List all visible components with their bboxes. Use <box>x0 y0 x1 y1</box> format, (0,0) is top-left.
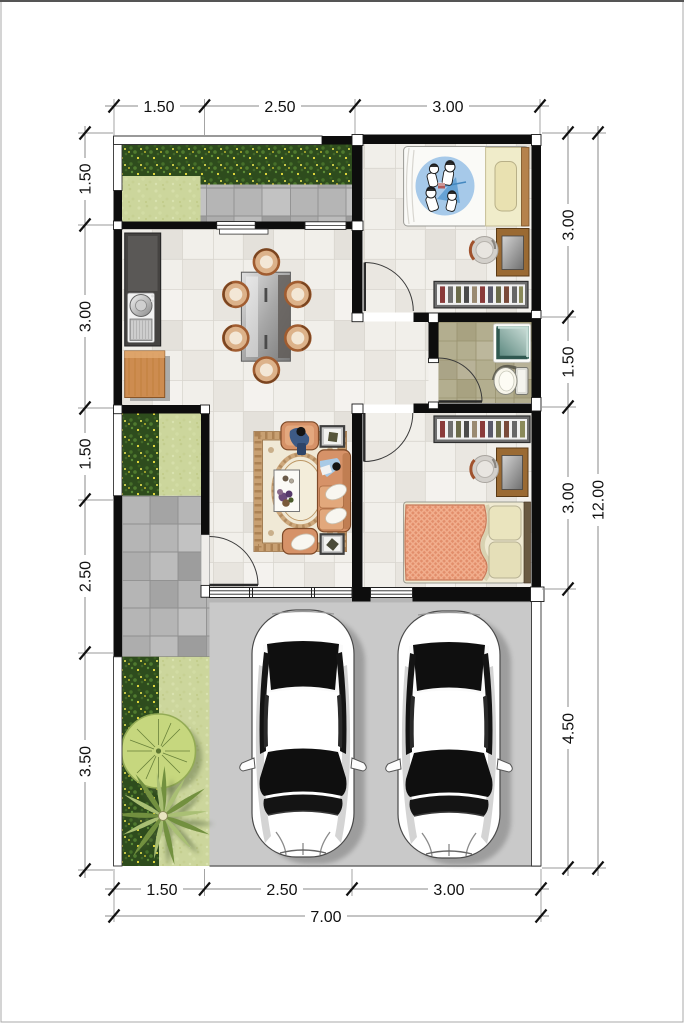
svg-text:1.50: 1.50 <box>561 346 578 377</box>
svg-text:3.50: 3.50 <box>78 746 95 777</box>
svg-text:3.00: 3.00 <box>433 882 464 899</box>
svg-text:3.00: 3.00 <box>561 209 578 240</box>
svg-text:12.00: 12.00 <box>591 480 608 520</box>
svg-text:2.50: 2.50 <box>78 561 95 592</box>
svg-text:3.00: 3.00 <box>432 99 463 116</box>
svg-text:3.00: 3.00 <box>78 301 95 332</box>
svg-text:1.50: 1.50 <box>146 882 177 899</box>
svg-text:4.50: 4.50 <box>561 713 578 744</box>
svg-text:2.50: 2.50 <box>264 99 295 116</box>
svg-text:2.50: 2.50 <box>266 882 297 899</box>
svg-text:7.00: 7.00 <box>310 909 341 926</box>
svg-text:1.50: 1.50 <box>78 438 95 469</box>
svg-text:3.00: 3.00 <box>561 482 578 513</box>
svg-text:1.50: 1.50 <box>78 163 95 194</box>
svg-text:1.50: 1.50 <box>143 99 174 116</box>
